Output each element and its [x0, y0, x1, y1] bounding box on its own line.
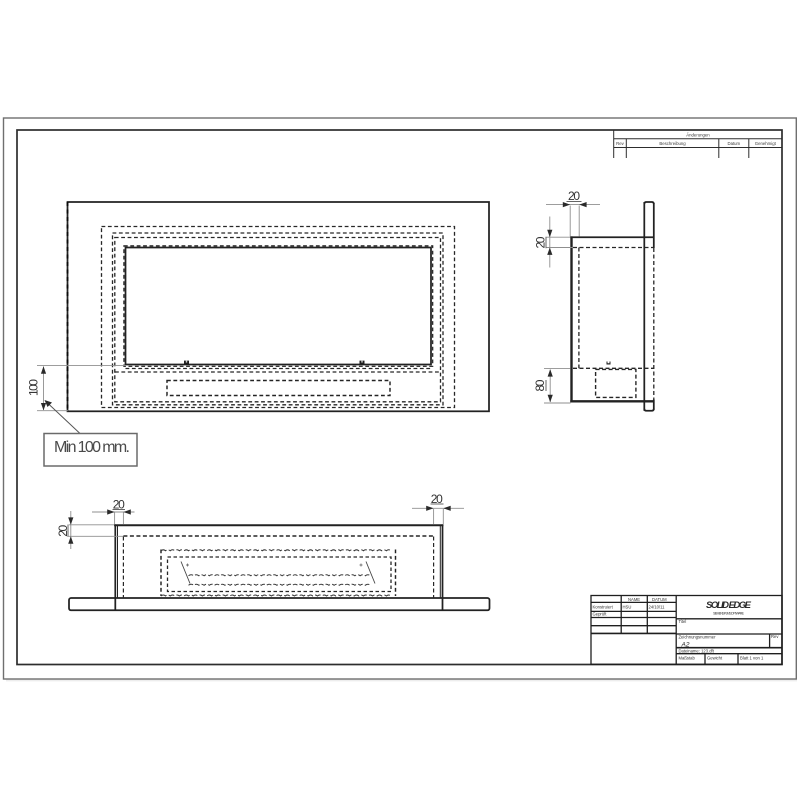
svg-text:80: 80	[533, 379, 547, 391]
svg-text:Zeichnungsnummer: Zeichnungsnummer	[679, 635, 717, 640]
svg-text:Beschreibung: Beschreibung	[659, 141, 686, 146]
svg-text:Min 100 mm.: Min 100 mm.	[54, 439, 130, 456]
svg-text:24/10/11: 24/10/11	[649, 605, 666, 610]
svg-text:Blatt 1 von 1: Blatt 1 von 1	[740, 656, 764, 661]
svg-text:SOLID EDGE: SOLID EDGE	[706, 600, 752, 611]
svg-text:20: 20	[533, 236, 547, 248]
svg-text:NAME: NAME	[628, 597, 640, 602]
svg-text:20: 20	[568, 189, 580, 203]
svg-text:Maßstab: Maßstab	[679, 656, 696, 661]
svg-text:A2: A2	[681, 641, 690, 648]
svg-text:Titel: Titel	[679, 619, 687, 624]
svg-text:Geprüft: Geprüft	[593, 612, 608, 617]
svg-text:Rev: Rev	[616, 141, 624, 146]
svg-text:Rev: Rev	[771, 634, 779, 639]
svg-text:Gewicht: Gewicht	[707, 656, 723, 661]
svg-text:100: 100	[27, 379, 41, 396]
svg-text:Änderungen: Änderungen	[686, 133, 710, 138]
svg-text:SIEMENS PLM SOFTWARE: SIEMENS PLM SOFTWARE	[713, 612, 745, 616]
svg-text:Dateiname: 123.dft: Dateiname: 123.dft	[679, 648, 715, 653]
svg-text:DATUM: DATUM	[652, 597, 667, 602]
svg-text:HSU: HSU	[623, 605, 632, 610]
svg-text:Konstruiert: Konstruiert	[593, 605, 614, 610]
svg-text:Datum: Datum	[727, 141, 740, 146]
svg-text:Genehmigt: Genehmigt	[755, 141, 777, 146]
